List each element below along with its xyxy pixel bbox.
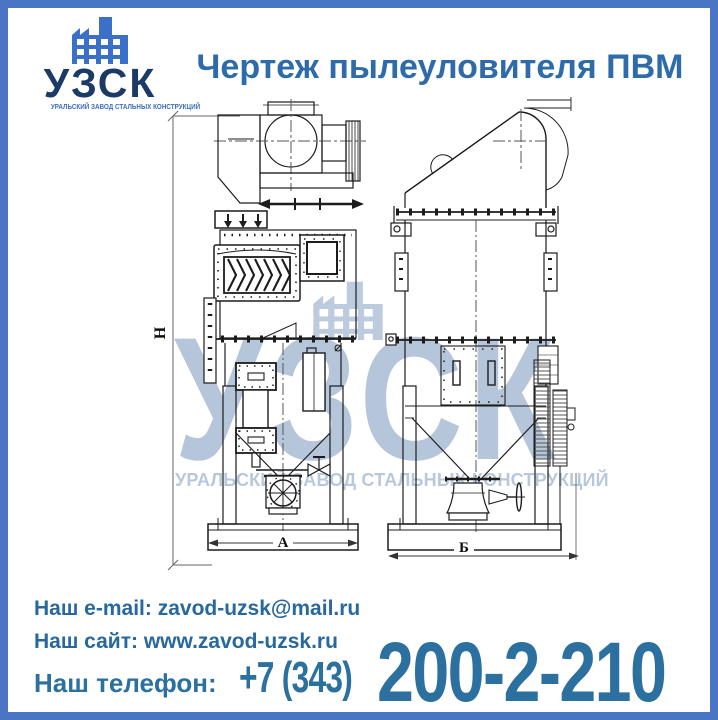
email-line: Наш e-mail: zavod-uzsk@mail.ru	[34, 597, 360, 621]
technical-drawing: Н	[148, 93, 713, 573]
phone-number: 200-2-210	[377, 639, 665, 706]
flyer-page: УЗСК УРАЛЬСКИЙ ЗАВОД СТАЛЬНЫХ КОНСТРУКЦИ…	[0, 0, 718, 720]
logo-tagline: УРАЛЬСКИЙ ЗАВОД СТАЛЬНЫХ КОНСТРУКЦИЙ	[51, 103, 149, 111]
dimension-height-label: Н	[152, 326, 169, 339]
dimension-front-width-label: А	[278, 535, 289, 551]
factory-icon	[66, 14, 134, 64]
phone-line: Наш телефон: +7 (343) 200-2-210	[34, 639, 695, 706]
email-label: Наш e-mail:	[34, 597, 152, 620]
side-view: Б	[386, 97, 579, 560]
email-value: zavod-uzsk@mail.ru	[158, 597, 361, 620]
phone-area-code: +7 (343)	[239, 653, 352, 706]
phone-label: Наш телефон:	[34, 668, 217, 706]
front-view: Н	[152, 99, 366, 570]
page-title: Чертеж пылеуловителя ПВМ	[176, 48, 704, 87]
dimension-side-width-label: Б	[459, 540, 469, 556]
